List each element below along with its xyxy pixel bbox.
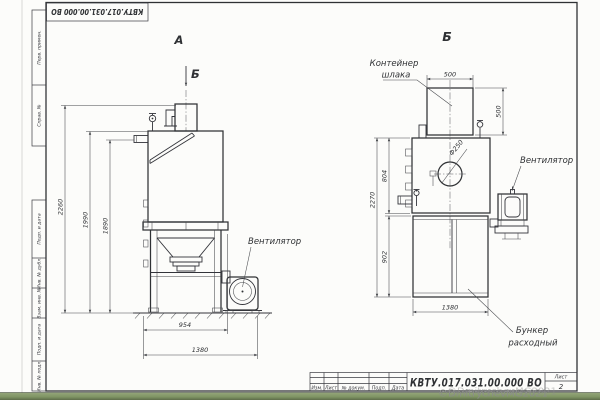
dim-902: 902 (381, 251, 389, 263)
dim-1380-b: 1380 (442, 304, 459, 312)
hopper-callout-1: Бункер (516, 326, 548, 336)
support-frame (149, 230, 223, 312)
container-callout-2: шлака (382, 71, 411, 81)
inner-fitting (430, 171, 436, 186)
dim-1990: 1990 (82, 212, 90, 229)
dim-954: 954 (179, 321, 191, 329)
strip-label-inv-dubl: Инв. № дубл. (37, 257, 43, 288)
dim-500-w: 500 (444, 71, 456, 79)
hopper-callout-2: расходный (507, 339, 558, 349)
fan-callout: Вентилятор (248, 237, 301, 247)
drawing-svg: Перв. примен. Справ. № Подп. и дата Инв.… (0, 0, 600, 400)
stamp-doc-code: КВТУ.017.031.00.000 ВО (51, 7, 143, 16)
tb-col-data: Дата (391, 386, 404, 392)
drawing-sheet: Перв. примен. Справ. № Подп. и дата Инв.… (0, 0, 600, 400)
fan-leader-b (512, 166, 521, 191)
tb-col-list: Лист (324, 386, 337, 392)
view-a-label: А (174, 33, 184, 47)
cabinet-body (134, 104, 228, 267)
tb-sheet-label: Лист (554, 375, 569, 381)
strip-label-sprav-no: Справ. № (37, 104, 43, 127)
hopper-funnel (157, 238, 215, 257)
view-b: Б Контейнер шлака 500 500 (369, 29, 574, 349)
dim-804: 804 (381, 170, 389, 182)
tb-col-izm: Изм. (311, 386, 322, 392)
dim-2260: 2260 (57, 199, 65, 216)
fan-callout-b: Вентилятор (520, 156, 573, 166)
view-b-label: Б (442, 29, 452, 44)
top-stub (419, 125, 426, 138)
tb-col-podp: Подп. (372, 386, 387, 392)
strip-label-perv-primen: Перв. примен. (37, 30, 43, 65)
tb-sheet-number: 2 (559, 383, 564, 391)
dim-f250: Ф250 (447, 138, 465, 157)
door-hinges (144, 200, 149, 267)
door-hinges-b (406, 149, 413, 207)
watermark: ©DmitrychevMG2021 (438, 389, 548, 400)
drawing-frame: Перв. примен. Справ. № Подп. и дата Инв.… (32, 3, 577, 392)
top-valve (149, 114, 156, 132)
section-arrow-label: Б (191, 67, 200, 81)
tb-col-doc: № докум. (341, 386, 366, 392)
fan-front-view (490, 187, 528, 240)
top-designation-stamp: КВТУ.017.031.00.000 ВО (47, 3, 149, 21)
left-attribute-strip: Перв. примен. Справ. № Подп. и дата Инв.… (32, 10, 46, 392)
fan-side-view (222, 271, 262, 313)
view-b-dimensions: 2270 804 902 1380 (369, 138, 489, 316)
strip-label-podp-data-1: Подп. и дата (37, 213, 43, 244)
container-dimensions: 500 500 (427, 71, 507, 136)
dim-500-h: 500 (495, 105, 503, 117)
strip-label-inv-podl: Инв. № подл. (37, 360, 43, 392)
side-pipe-stub (134, 136, 148, 143)
hopper-leader (468, 289, 513, 332)
view-a: А Б (57, 33, 302, 359)
container-leader (383, 80, 452, 106)
dim-1380-a: 1380 (192, 346, 209, 354)
dim-2270: 2270 (369, 192, 377, 209)
hopper-frame (413, 216, 488, 297)
strip-label-vzam-inv: Взам. инв. № (37, 287, 43, 318)
dim-1890: 1890 (102, 218, 110, 235)
chute (150, 133, 195, 164)
ground-line (133, 313, 272, 319)
strip-label-podp-data-2: Подп. и дата (37, 324, 43, 355)
container-callout-1: Контейнер (370, 59, 419, 69)
top-valve-b (477, 121, 483, 139)
small-valve-b (414, 190, 420, 207)
